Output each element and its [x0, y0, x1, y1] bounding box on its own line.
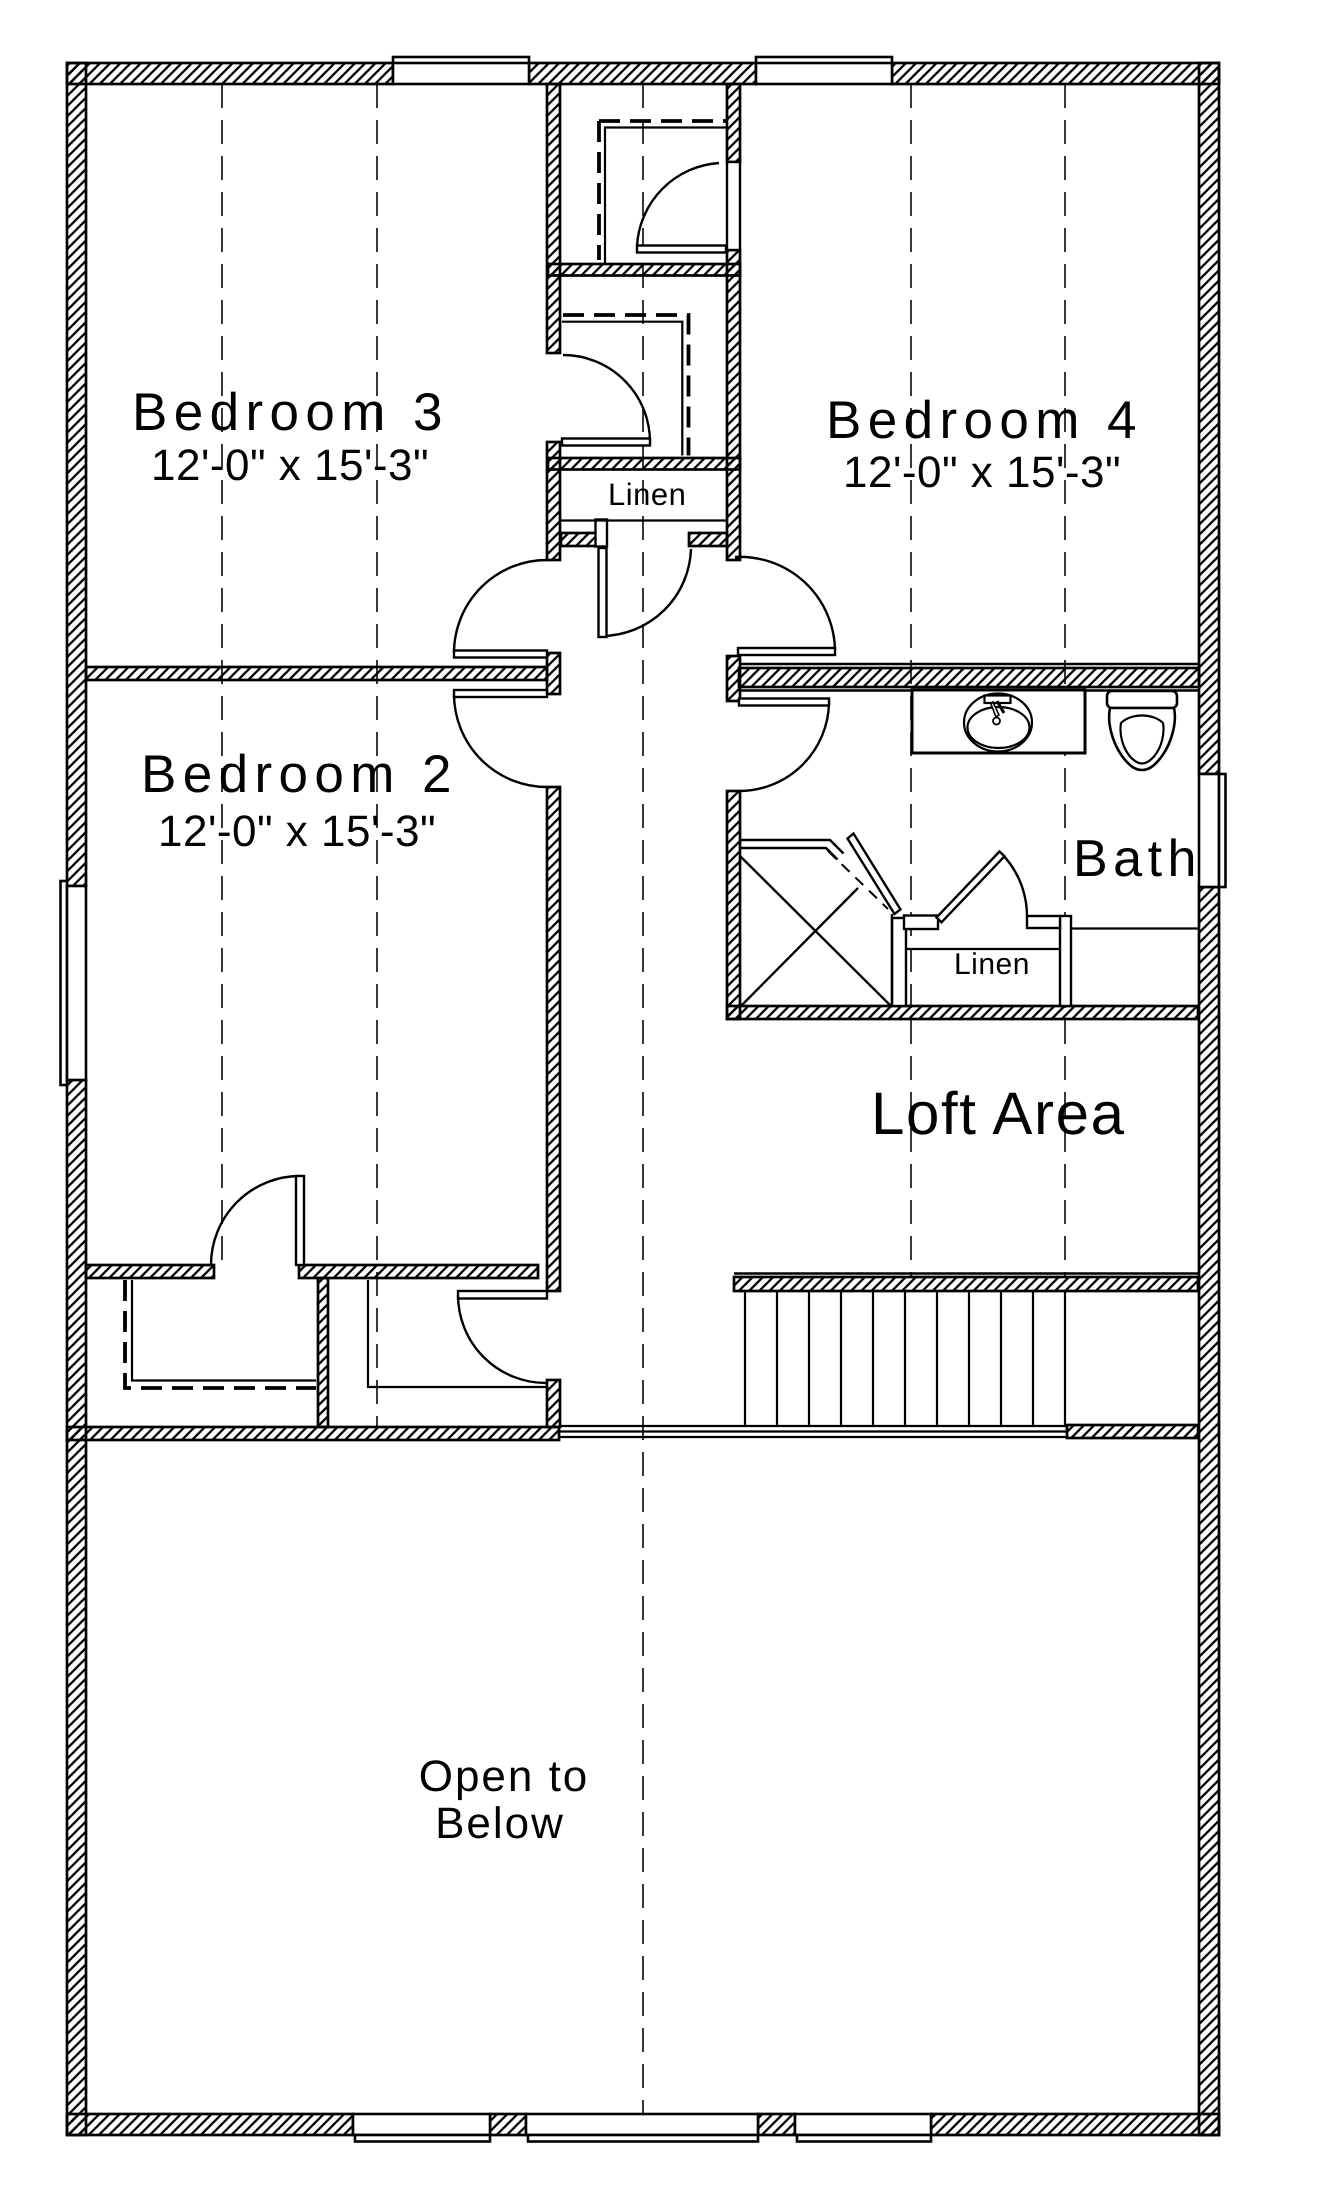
- svg-text:Bedroom 3: Bedroom 3: [132, 383, 449, 442]
- svg-text:Bath: Bath: [1073, 830, 1202, 888]
- svg-text:12'-0" x 15'-3": 12'-0" x 15'-3": [843, 448, 1121, 497]
- svg-text:Below: Below: [435, 1799, 565, 1848]
- svg-text:12'-0" x 15'-3": 12'-0" x 15'-3": [151, 441, 429, 490]
- svg-text:Linen: Linen: [608, 477, 686, 512]
- svg-text:Linen: Linen: [954, 948, 1030, 981]
- svg-text:Bedroom 2: Bedroom 2: [141, 745, 458, 804]
- svg-text:Open to: Open to: [419, 1752, 590, 1801]
- svg-text:12'-0" x 15'-3": 12'-0" x 15'-3": [158, 807, 436, 856]
- svg-text:Loft Area: Loft Area: [871, 1080, 1126, 1147]
- svg-text:Bedroom 4: Bedroom 4: [826, 391, 1143, 450]
